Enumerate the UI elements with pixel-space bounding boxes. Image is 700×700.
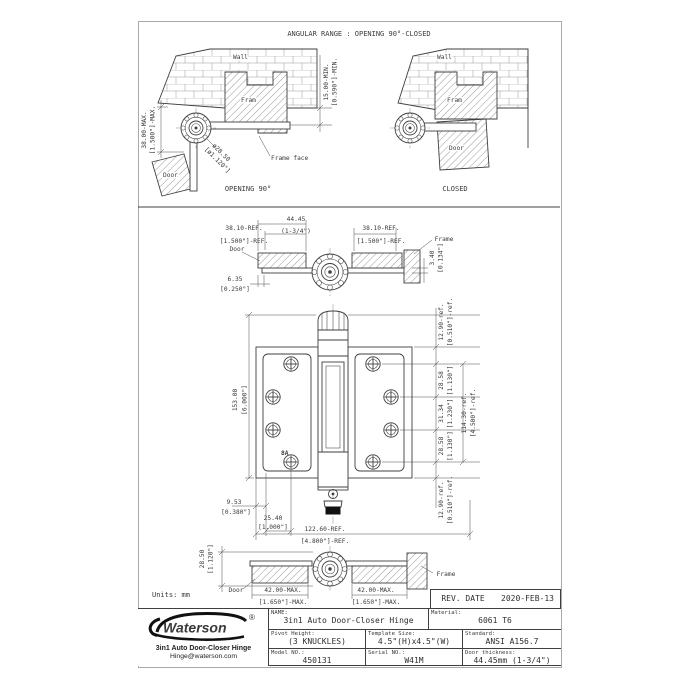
right-leaf bbox=[340, 268, 412, 273]
drawing-page: ANGULAR RANGE : OPENING 90°-CLOSED bbox=[0, 0, 700, 700]
door-section bbox=[252, 566, 308, 583]
dim-col-mm: 25.40 bbox=[264, 515, 283, 522]
material-value: 6061 T6 bbox=[429, 616, 561, 625]
pivot-label: Pivot Height: bbox=[269, 630, 365, 637]
dim-door-offset-mm: 38.00-MAX. bbox=[141, 111, 148, 148]
name-label: NAME: bbox=[269, 609, 428, 616]
serial-cell: Serial NO.: W41M bbox=[365, 648, 462, 666]
door-label: Door bbox=[229, 587, 244, 594]
dim-inset-mm: 6.35 bbox=[228, 276, 243, 283]
dim-screw-span-mm: 114.30-ref. bbox=[461, 393, 468, 434]
logo-email: Hinge@waterson.com bbox=[138, 653, 269, 660]
dim-col-in: [1.000"] bbox=[258, 524, 288, 531]
leaf-mark: 8A bbox=[281, 450, 289, 457]
dim-edge-in: [0.380"] bbox=[221, 509, 251, 516]
material-label: Material: bbox=[429, 609, 561, 616]
template-label: Template Size: bbox=[366, 630, 462, 637]
thickness-value: 44.45mm (1-3/4") bbox=[463, 656, 561, 665]
dim-knuckle-dia: ø28.50 [ø1.120"] bbox=[203, 140, 237, 174]
dim-door-leaf-mm: 42.00-MAX. bbox=[264, 587, 301, 594]
dim-open-width-mm: 122.60-REF. bbox=[305, 526, 346, 533]
adjuster-collar bbox=[324, 501, 342, 507]
logo-brand-text: Waterson bbox=[163, 620, 227, 636]
frame-label: Frame bbox=[435, 236, 454, 243]
dim-leaf-thk-in: [0.134"] bbox=[438, 243, 445, 273]
hinge-leaf bbox=[423, 123, 476, 131]
dim-left-leaf-mm: 38.10-REF. bbox=[225, 225, 262, 232]
waterson-logo: Waterson ® bbox=[145, 611, 263, 641]
hinge-leaf-door bbox=[190, 142, 197, 191]
dim-pitch3-mm: 28.58 bbox=[438, 436, 445, 455]
logo-box: Waterson ® 3in1 Auto Door-Closer Hinge H… bbox=[138, 608, 269, 666]
serial-value: W41M bbox=[366, 656, 462, 665]
serial-label: Serial NO.: bbox=[366, 649, 462, 656]
hinge-leaf-frame bbox=[206, 122, 290, 129]
dim-height-in: [6.000"] bbox=[242, 385, 249, 415]
hinge-knuckle bbox=[390, 108, 430, 148]
closed-view: Wall Fram Door CLOSED bbox=[390, 49, 528, 193]
dim-right-leaf-in: [1.500"]-REF. bbox=[357, 238, 405, 245]
thickness-cell: Door thickness: 44.45mm (1-3/4") bbox=[462, 648, 561, 666]
dim-inset-in: [0.250"] bbox=[220, 286, 250, 293]
model-label: Model NO.: bbox=[269, 649, 365, 656]
door-section bbox=[258, 253, 306, 268]
dim-top-end-in: [0.510"]-ref. bbox=[447, 298, 454, 346]
frame-face-label: Frame face bbox=[271, 155, 309, 162]
front-view: 153.00 [6.000"] 12.90-ref. [0.510"]-ref.… bbox=[221, 298, 480, 545]
frame-section bbox=[352, 566, 407, 583]
pivot-value: (3 KNUCKLES) bbox=[269, 637, 365, 646]
frame-label: Frame bbox=[437, 571, 456, 578]
units-note: Units: mm bbox=[152, 591, 190, 599]
frame-label: Fram bbox=[241, 97, 256, 104]
closed-caption: CLOSED bbox=[442, 185, 467, 193]
dim-knuckle-dia-in: [1.120"] bbox=[208, 544, 215, 574]
dim-reveal-mm: 15.00-MIN. bbox=[323, 63, 330, 100]
dim-door-leaf-in: [1.650"]-MAX. bbox=[259, 599, 307, 606]
dim-door-thickness-in: (1-3/4") bbox=[281, 228, 311, 235]
right-leaf-face bbox=[355, 354, 404, 471]
bottom-view: 28.50 [1.120"] Door Frame 42.00-MAX. [1.… bbox=[199, 544, 456, 606]
pivot-cell: Pivot Height: (3 KNUCKLES) bbox=[268, 629, 365, 648]
door-label: Door bbox=[163, 172, 178, 179]
frame-end-section bbox=[404, 250, 420, 283]
door-label: Door bbox=[449, 145, 464, 152]
dim-screw-span-in: [4.500"]-ref. bbox=[470, 389, 477, 437]
dim-left-leaf-in: [1.500"]-REF. bbox=[220, 238, 268, 245]
dim-pitch1-in: [1.130"] bbox=[447, 366, 454, 396]
angular-range-title: ANGULAR RANGE : OPENING 90°-CLOSED bbox=[287, 30, 430, 38]
right-leaf bbox=[346, 561, 412, 566]
standard-cell: Standard: ANSI A156.7 bbox=[462, 629, 561, 648]
standard-value: ANSI A156.7 bbox=[463, 637, 561, 646]
logo-registered-mark: ® bbox=[249, 613, 255, 622]
hinge-barrel bbox=[318, 311, 348, 514]
opening-90-caption: OPENING 90° bbox=[225, 185, 271, 193]
dim-bottom-end-mm: 12.90-ref. bbox=[438, 481, 445, 518]
dim-reveal-in: [0.590"]-MIN. bbox=[332, 58, 339, 106]
dim-leaf-thk-mm: 3.40 bbox=[429, 250, 436, 265]
frame-label: Fram bbox=[447, 97, 462, 104]
dim-pitch3-in: [1.130"] bbox=[447, 431, 454, 461]
hinge-knuckle bbox=[313, 552, 347, 586]
name-value: 3in1 Auto Door-Closer Hinge bbox=[269, 616, 428, 625]
thickness-label: Door thickness: bbox=[463, 649, 561, 656]
opening-90-view: Wall Fram Door Frame face 38.00-MAX. [1.… bbox=[141, 49, 339, 196]
dim-edge-mm: 9.53 bbox=[227, 499, 242, 506]
door-label: Door bbox=[230, 246, 245, 253]
dim-top-end-mm: 12.90-ref. bbox=[438, 303, 445, 340]
top-view: 44.45 (1-3/4") 38.10-REF. [1.500"]-REF. … bbox=[220, 216, 454, 298]
frame-section bbox=[352, 253, 402, 268]
hinge-knuckle bbox=[312, 254, 348, 290]
dim-door-thickness-mm: 44.45 bbox=[287, 216, 306, 223]
frame-end-section bbox=[407, 553, 427, 589]
dim-open-width-in: [4.800"]-REF. bbox=[301, 538, 349, 545]
rev-date-label-cell: REV. DATE bbox=[430, 589, 496, 609]
dim-door-offset-in: [1.500"]-MAX. bbox=[150, 106, 157, 154]
dim-pitch2-mm: 31.34 bbox=[438, 404, 445, 423]
wall-label: Wall bbox=[437, 54, 452, 61]
wall-label: Wall bbox=[233, 54, 248, 61]
hinge-technical-drawing: ANGULAR RANGE : OPENING 90°-CLOSED bbox=[0, 0, 700, 700]
model-cell: Model NO.: 450131 bbox=[268, 648, 365, 666]
dim-right-leaf-mm: 38.10-REF. bbox=[362, 225, 399, 232]
dim-pitch2-in: [1.230"] bbox=[447, 399, 454, 429]
template-cell: Template Size: 4.5"(H)x4.5"(W) bbox=[365, 629, 462, 648]
dim-pitch1-mm: 28.58 bbox=[438, 371, 445, 390]
dim-frame-leaf-in: [1.650"]-MAX. bbox=[352, 599, 400, 606]
dim-knuckle-dia-mm: 28.50 bbox=[199, 549, 206, 568]
dim-height-mm: 153.00 bbox=[232, 389, 239, 412]
dim-bottom-end-in: [0.510"]-ref. bbox=[447, 476, 454, 524]
dim-frame-leaf-mm: 42.00-MAX. bbox=[357, 587, 394, 594]
rev-date-value-cell: 2020-FEB-13 bbox=[495, 589, 561, 609]
model-value: 450131 bbox=[269, 656, 365, 665]
left-leaf bbox=[250, 561, 312, 566]
rev-date-label: REV. DATE bbox=[431, 594, 495, 603]
logo-tagline: 3in1 Auto Door-Closer Hinge bbox=[138, 645, 269, 652]
name-cell: NAME: 3in1 Auto Door-Closer Hinge bbox=[268, 608, 428, 629]
standard-label: Standard: bbox=[463, 630, 561, 637]
rev-date-value: 2020-FEB-13 bbox=[495, 594, 560, 603]
material-cell: Material: 6061 T6 bbox=[428, 608, 561, 629]
adjuster-nut bbox=[326, 507, 340, 514]
template-value: 4.5"(H)x4.5"(W) bbox=[366, 637, 462, 646]
